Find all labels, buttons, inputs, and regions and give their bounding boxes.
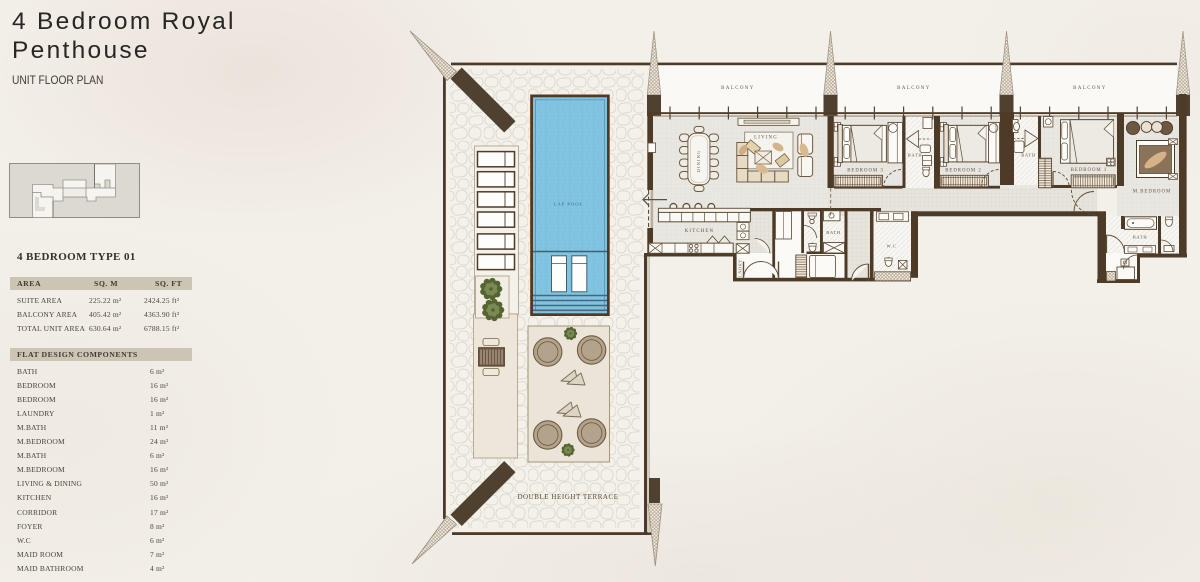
svg-text:LNDRY: LNDRY	[738, 259, 743, 277]
svg-text:DOUBLE HEIGHT TERRACE: DOUBLE HEIGHT TERRACE	[517, 493, 618, 501]
svg-text:BALCONY: BALCONY	[1073, 86, 1107, 91]
svg-text:BATH: BATH	[826, 230, 841, 235]
svg-text:BATH: BATH	[908, 153, 923, 158]
svg-text:BEDROOM 1: BEDROOM 1	[1071, 168, 1108, 173]
svg-text:DINING: DINING	[696, 150, 701, 173]
svg-text:BEDROOM 2: BEDROOM 2	[945, 169, 982, 174]
svg-text:M.BEDROOM: M.BEDROOM	[1133, 190, 1171, 195]
svg-text:BATH: BATH	[1021, 153, 1036, 158]
svg-text:W.C: W.C	[886, 244, 896, 249]
svg-text:BALCONY: BALCONY	[721, 86, 755, 91]
svg-text:LIVING: LIVING	[754, 136, 778, 141]
svg-text:LAP POOL: LAP POOL	[554, 202, 584, 207]
svg-text:BATH: BATH	[1133, 235, 1148, 240]
svg-text:KITCHEN: KITCHEN	[685, 229, 714, 234]
svg-text:BEDROOM 3: BEDROOM 3	[847, 169, 884, 174]
svg-text:BALCONY: BALCONY	[897, 86, 931, 91]
